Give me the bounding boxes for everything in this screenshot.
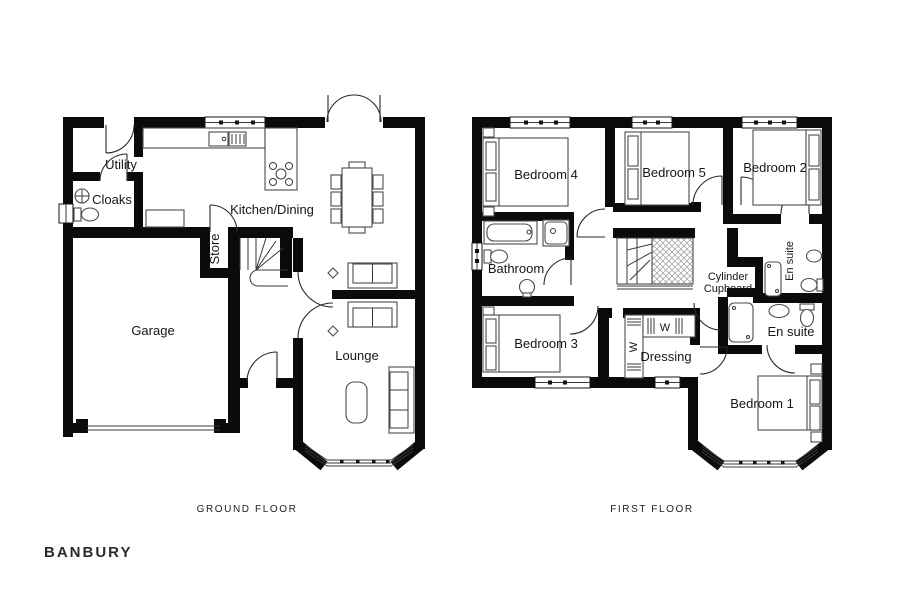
sofa-three-seat bbox=[389, 367, 414, 433]
cloaks-basin-icon bbox=[75, 189, 89, 203]
label-cloaks: Cloaks bbox=[92, 192, 132, 207]
first-floor-caption: FIRST FLOOR bbox=[610, 504, 694, 515]
label-lounge: Lounge bbox=[335, 348, 378, 363]
entrance-door bbox=[106, 125, 134, 153]
floorplan-image: Utility Cloaks Kitchen/Dining Store Gara… bbox=[0, 0, 900, 600]
first-floor-plan: Bedroom 4 Bedroom 5 Bedroom 2 Bathroom C… bbox=[472, 117, 832, 467]
bathroom-shower-icon bbox=[543, 220, 569, 246]
label-utility: Utility bbox=[105, 157, 137, 172]
bedroom4-window bbox=[510, 117, 570, 128]
bathroom-window bbox=[472, 243, 482, 270]
ground-floor-plan: Utility Cloaks Kitchen/Dining Store Gara… bbox=[59, 95, 425, 466]
label-bedroom1: Bedroom 1 bbox=[730, 396, 794, 411]
kitchen-sink bbox=[209, 132, 246, 146]
bedroom2-window bbox=[742, 117, 797, 128]
label-bedroom5: Bedroom 5 bbox=[642, 165, 706, 180]
label-cylinder-cupboard-line1: Cylinder bbox=[708, 271, 749, 283]
bedroom4-door bbox=[577, 209, 605, 237]
plan-title: BANBURY bbox=[44, 544, 132, 561]
lounge-double-doors bbox=[298, 268, 338, 338]
kitchen-window bbox=[205, 117, 265, 128]
label-kitchen-dining: Kitchen/Dining bbox=[230, 202, 314, 217]
label-ensuite-bedroom1: En suite bbox=[768, 324, 815, 339]
cloaks-toilet-icon bbox=[74, 208, 99, 221]
bedroom5-door bbox=[693, 176, 722, 205]
bedroom5-window bbox=[632, 117, 672, 128]
label-bedroom3: Bedroom 3 bbox=[514, 336, 578, 351]
bathroom-basin-icon bbox=[520, 280, 535, 298]
french-doors bbox=[327, 95, 381, 122]
sofa-lounge bbox=[348, 302, 397, 327]
bedroom3-window bbox=[535, 377, 590, 388]
bedroom1-bay-window bbox=[702, 446, 818, 467]
bathtub-icon bbox=[484, 221, 537, 244]
bathroom-door bbox=[544, 258, 571, 285]
coffee-table bbox=[346, 382, 367, 423]
label-ensuite-bedroom2: En suite bbox=[784, 241, 796, 281]
label-garage: Garage bbox=[131, 323, 174, 338]
cloaks-vent-box bbox=[59, 204, 73, 223]
label-dressing: Dressing bbox=[640, 349, 691, 364]
ensuite2-toilet-icon bbox=[801, 279, 823, 292]
label-bathroom: Bathroom bbox=[488, 261, 544, 276]
ensuite2-shower-icon bbox=[765, 262, 781, 296]
garage-door bbox=[87, 426, 220, 430]
floorplan-page: Utility Cloaks Kitchen/Dining Store Gara… bbox=[0, 0, 900, 600]
dressing-window bbox=[655, 377, 680, 388]
ensuite1-basin-icon bbox=[769, 305, 789, 318]
ground-floor-caption: GROUND FLOOR bbox=[197, 504, 298, 515]
label-bedroom2: Bedroom 2 bbox=[743, 160, 807, 175]
label-bedroom4: Bedroom 4 bbox=[514, 167, 578, 182]
stairs-first bbox=[617, 238, 693, 289]
ensuite1-shower-icon bbox=[729, 303, 753, 342]
label-store: Store bbox=[207, 233, 222, 264]
ensuite-bedroom1-door bbox=[767, 345, 795, 373]
rear-hall-door bbox=[247, 352, 277, 382]
dining-table bbox=[331, 162, 383, 233]
ensuite2-basin-icon bbox=[807, 250, 822, 262]
label-cylinder-cupboard-line2: Cupboard bbox=[704, 283, 752, 295]
bedroom3-door bbox=[570, 306, 598, 334]
sofa-dining-side bbox=[348, 263, 397, 288]
label-wardrobe-w-left: W bbox=[628, 341, 640, 352]
label-wardrobe-w-top: W bbox=[660, 322, 671, 334]
